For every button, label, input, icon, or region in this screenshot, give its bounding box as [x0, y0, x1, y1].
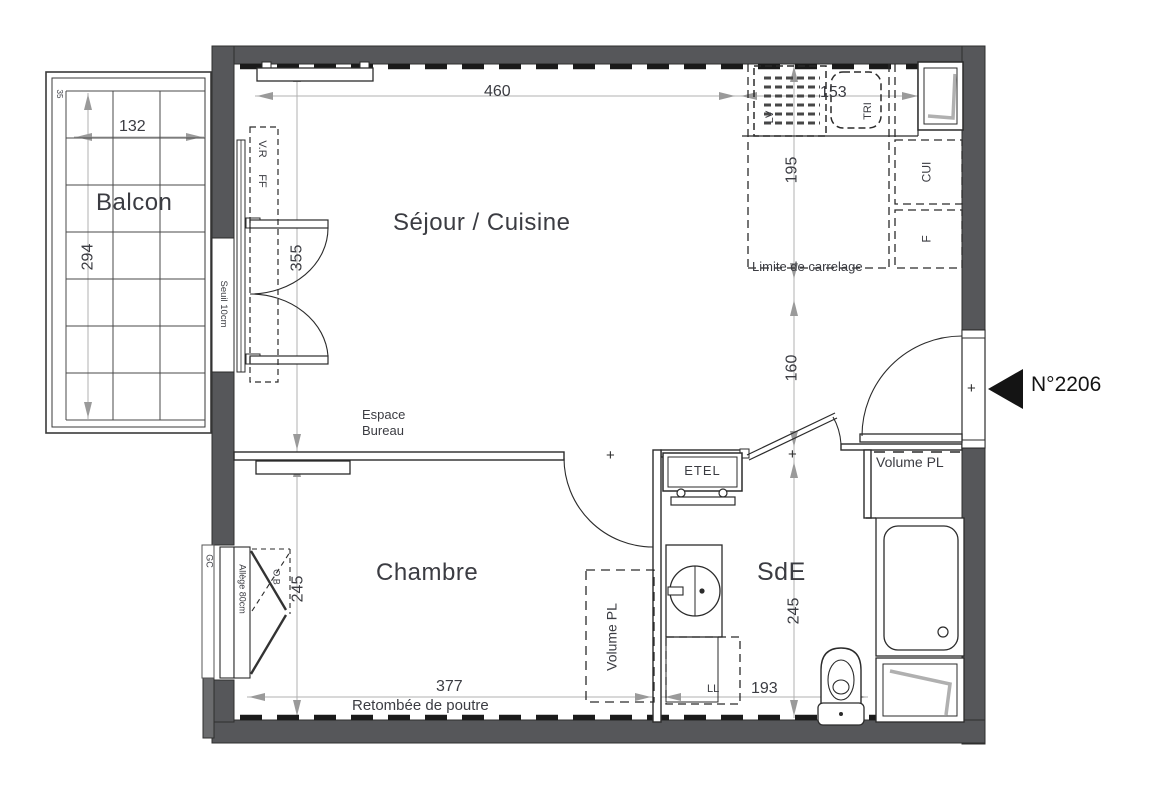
- radiators: [256, 62, 373, 474]
- beam-drop-dashes: [240, 67, 960, 718]
- unit-pointer-icon: [988, 369, 1023, 409]
- washing-machine-label: LL: [707, 684, 719, 696]
- bedroom-closet-label: Volume PL: [605, 603, 620, 671]
- washing-machine-zone: [666, 637, 740, 704]
- unit-number: N°2206: [1031, 374, 1101, 396]
- shower-room-window: [876, 658, 964, 722]
- dim-kitchen-width: 153: [820, 85, 847, 102]
- beam-drop-label: Retombée de poutre: [352, 698, 489, 714]
- dim-living-width: 460: [484, 84, 511, 101]
- dim-balcony-width: 132: [119, 119, 146, 136]
- room-label-bedroom: Chambre: [376, 560, 478, 585]
- exterior-walls: [203, 46, 985, 744]
- dim-bedroom-width: 377: [436, 679, 463, 696]
- water-panel-label: ETEL: [663, 464, 742, 478]
- entry-closet-label: Volume PL: [876, 455, 944, 470]
- room-label-living-kitchen: Séjour / Cuisine: [393, 210, 570, 235]
- floor-plan-linework: [0, 0, 1176, 800]
- kitchen-unit-label: CUI: [921, 162, 934, 183]
- shower: [876, 518, 964, 656]
- dim-entry-depth: 160: [785, 355, 802, 382]
- sorting-bin-label: TRI: [863, 102, 875, 120]
- desk-area-label-line1: Espace: [362, 408, 405, 422]
- washbasin: [666, 545, 722, 637]
- bedroom-door-swing: [564, 458, 653, 547]
- dim-shower-room-depth: 245: [787, 598, 804, 625]
- fridge-label: F: [921, 235, 934, 242]
- dim-shower-room-width: 193: [751, 681, 778, 698]
- dim-bedroom-depth: 245: [291, 576, 308, 603]
- room-label-shower-room: SdE: [757, 559, 806, 585]
- sill-label: Allège 80cm: [237, 564, 246, 614]
- window-ff-label: FF: [255, 174, 267, 187]
- dim-balcony-depth: 294: [81, 244, 98, 271]
- floor-plan: Balcon Séjour / Cuisine Chambre SdE N°22…: [0, 0, 1176, 800]
- threshold-label: Seuil 10cm: [218, 281, 228, 328]
- dim-living-depth: 355: [290, 245, 307, 272]
- ob-label: O.B: [271, 569, 280, 585]
- gc-label: GC: [204, 554, 213, 568]
- cross-mark-living: +: [606, 448, 615, 464]
- cross-mark-hall: +: [788, 447, 797, 463]
- dim-kitchen-depth: 195: [785, 157, 802, 184]
- etel-unit: [663, 453, 742, 505]
- roller-shutter-label: V.R: [255, 140, 267, 157]
- tiling-limit-label: Limite de carrelage: [752, 260, 863, 274]
- bedroom-closet-zone: [586, 570, 654, 702]
- cross-mark-entrance: +: [967, 381, 976, 397]
- desk-area-label-line2: Bureau: [362, 424, 404, 438]
- room-label-balcony: Balcon: [96, 190, 172, 215]
- dishwasher-label: LV: [765, 111, 777, 124]
- corner-mark-label: 35: [55, 90, 63, 99]
- toilet: [818, 648, 864, 725]
- kitchen-window: [918, 62, 963, 130]
